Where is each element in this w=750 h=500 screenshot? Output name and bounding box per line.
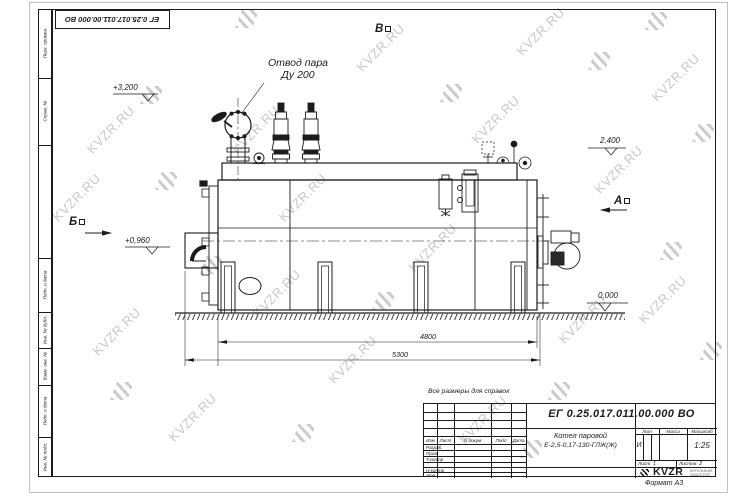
scale-header: Масштаб [687, 429, 717, 434]
filing-stamp-number: ЕГ 0.25.017.011.00.000 ВО [65, 15, 159, 24]
kvzr-logo-tagline: КОТЕЛЬНЫЙ ЗАВОД РЭП [690, 469, 712, 477]
elevation-top: +3,200 [113, 83, 138, 92]
margin-label-perv-primen: Перв. примен. [43, 28, 48, 59]
row-razrab: Разраб. [426, 445, 443, 450]
titleblock-doc-number: ЕГ 0.25.017.011.00.000 ВО [526, 408, 717, 420]
margin-label-inv-dubl: Инв. № дубл. [43, 316, 48, 344]
product-name-line1: Котел паровой [528, 431, 633, 440]
margin-label-podp-data-2: Подп. и дата [43, 397, 48, 426]
row-utv: Утв. [426, 473, 436, 478]
margin-label-podp-data-1: Подп. и дата [43, 271, 48, 300]
margin-label-vzam-inv: Взам. инв. № [43, 352, 48, 380]
view-marker-b: Б [69, 216, 85, 228]
sheet-edge [727, 2, 728, 492]
row-prov: Пров. [426, 451, 438, 456]
dimension-label-5300: 5300 [372, 350, 428, 359]
sheet-edge [29, 2, 728, 3]
view-sheet-ref-icon [385, 26, 391, 32]
kvzr-logo-text: KVZR [653, 466, 683, 478]
format-note: Формат А3 [612, 480, 716, 487]
steam-outlet-callout-line1: Отвод пара [246, 57, 350, 69]
col-header-list: Лист [437, 438, 454, 443]
dimension-label-4800: 4800 [400, 332, 456, 341]
row-tkontr: Т.контр [426, 457, 443, 462]
kvzr-logo-icon [639, 469, 650, 477]
margin-label-sprav-n: Справ. № [43, 101, 48, 122]
sheet-edge [29, 492, 728, 493]
col-header-izm: Изм [424, 438, 437, 443]
lit-value: И [635, 442, 643, 449]
margin-label-inv-podl: Инв. № подл. [43, 443, 48, 472]
mass-header: Масса [659, 429, 687, 434]
col-header-podp: Подп [491, 438, 511, 443]
view-marker-v: В [375, 23, 391, 35]
steam-outlet-callout: Отвод пара Ду 200 [246, 57, 350, 81]
elevation-zero: 0,000 [590, 291, 626, 300]
product-name-line2: Е-2,5-0,17-130-ГЛЖ(Ж) [528, 442, 633, 449]
sheet-edge [29, 2, 30, 492]
view-marker-a: А [614, 195, 630, 207]
steam-outlet-callout-line2: Ду 200 [246, 69, 350, 81]
reference-note: Все размеры для справок [428, 388, 509, 395]
elevation-right: 2,400 [592, 136, 628, 145]
elevation-mid: +0,960 [125, 236, 150, 245]
view-sheet-ref-icon [79, 219, 85, 225]
col-header-ndocum: N докум [454, 438, 491, 443]
view-sheet-ref-icon [624, 198, 630, 204]
lit-header: Лит [635, 429, 659, 434]
col-header-data: Дата [511, 438, 526, 443]
product-name: Котел паровой Е-2,5-0,17-130-ГЛЖ(Ж) [528, 431, 633, 449]
title-block: ЕГ 0.25.017.011.00.000 ВО Изм Лист N док… [423, 403, 716, 477]
scale-value: 1:25 [687, 441, 717, 450]
filing-stamp: ЕГ 0.25.017.011.00.000 ВО [55, 10, 170, 29]
